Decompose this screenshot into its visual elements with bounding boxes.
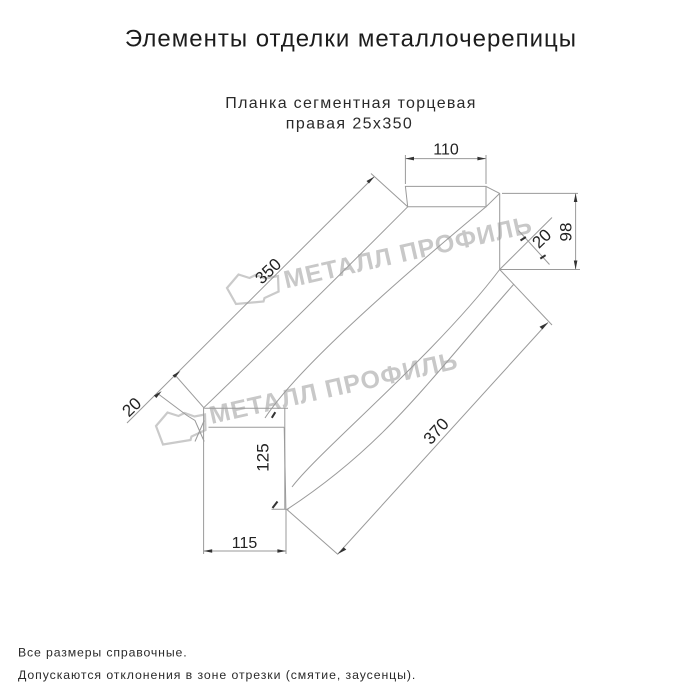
svg-text:110: 110 (433, 142, 459, 159)
svg-text:Элементы отделки металлочерепи: Элементы отделки металлочерепицы (125, 26, 577, 53)
svg-text:20: 20 (118, 394, 145, 421)
svg-text:МЕТАЛЛ ПРОФИЛЬ: МЕТАЛЛ ПРОФИЛЬ (207, 347, 461, 430)
svg-text:125: 125 (254, 443, 273, 471)
svg-text:370: 370 (420, 414, 453, 448)
svg-text:115: 115 (232, 535, 258, 552)
svg-text:МЕТАЛЛ ПРОФИЛЬ: МЕТАЛЛ ПРОФИЛЬ (281, 211, 535, 295)
svg-text:350: 350 (251, 255, 285, 288)
svg-text:98: 98 (557, 223, 576, 242)
svg-text:правая 25x350: правая 25x350 (286, 116, 413, 133)
svg-text:Планка сегментная торцевая: Планка сегментная торцевая (225, 95, 476, 112)
svg-text:Все размеры справочные.: Все размеры справочные. (18, 646, 187, 660)
svg-text:Допускаются отклонения в зоне: Допускаются отклонения в зоне отрезки (с… (18, 668, 416, 682)
